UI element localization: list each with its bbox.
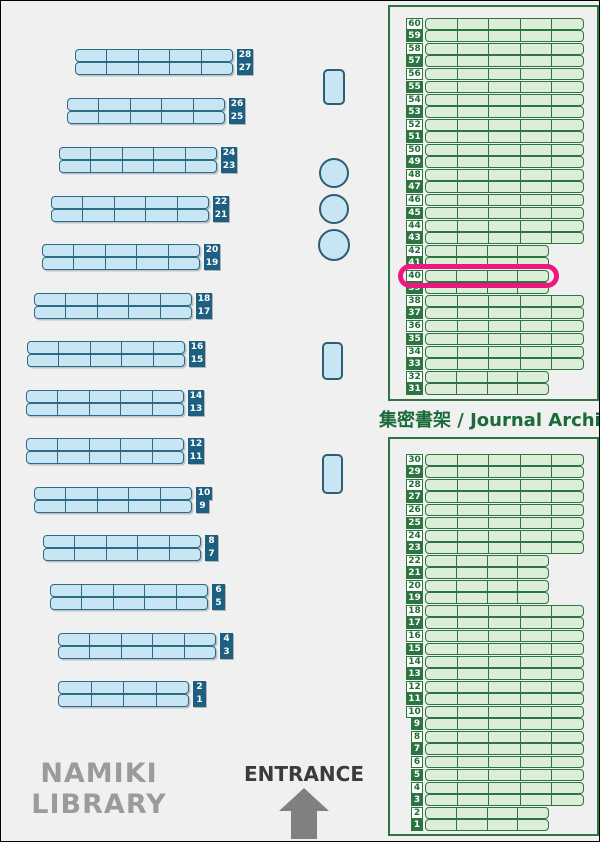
archive-shelf-number-36: 36 — [406, 320, 423, 332]
shelf-segment — [76, 63, 106, 74]
archive-shelf-row-51 — [425, 131, 584, 143]
shelf-segment — [90, 148, 121, 159]
shelf-row-16 — [27, 341, 185, 354]
shelf-segment — [520, 56, 552, 66]
shelf-segment — [426, 783, 457, 793]
shelf-segment — [35, 501, 65, 512]
archive-shelf-row-18 — [425, 605, 584, 617]
shelf-segment — [551, 531, 583, 541]
shelf-segment — [551, 44, 583, 54]
shelf-row-20 — [42, 244, 200, 257]
shelf-segment — [426, 657, 457, 667]
shelf-segment — [551, 505, 583, 515]
shelf-segment — [488, 82, 520, 92]
shelf-segment — [59, 695, 91, 706]
shelf-segment — [106, 63, 137, 74]
shelf-segment — [426, 170, 457, 180]
archive-shelf-number-57: 57 — [406, 55, 423, 67]
shelf-segment — [520, 657, 552, 667]
shelf-row-5 — [50, 597, 208, 610]
entrance-arrow-icon — [279, 788, 329, 811]
shelf-segment — [551, 95, 583, 105]
shelf-segment — [145, 197, 176, 208]
shelf-segment — [551, 492, 583, 502]
shelf-segment — [73, 258, 104, 269]
shelf-segment — [457, 669, 489, 679]
shelf-segment — [426, 757, 457, 767]
archive-shelf-number-52: 52 — [406, 119, 423, 131]
shelf-segment — [137, 536, 168, 547]
shelf-segment — [426, 455, 457, 465]
shelf-segment — [520, 69, 552, 79]
shelf-segment — [74, 536, 105, 547]
shelf-segment — [488, 631, 520, 641]
shelf-segment — [98, 99, 129, 110]
archive-shelf-row-13 — [425, 668, 584, 680]
shelf-segment — [520, 157, 552, 167]
shelf-segment — [520, 296, 552, 306]
shelf-segment — [27, 452, 57, 463]
shelf-row-2 — [58, 681, 189, 694]
shelf-segment — [488, 455, 520, 465]
shelf-segment — [89, 404, 120, 415]
shelf-segment — [488, 56, 520, 66]
shelf-row-6 — [50, 584, 208, 597]
shelf-segment — [426, 221, 457, 231]
shelf-segment — [426, 195, 457, 205]
shelf-segment — [426, 95, 457, 105]
archive-shelf-row-22 — [425, 555, 549, 567]
shelf-segment — [551, 543, 583, 553]
shelf-segment — [551, 195, 583, 205]
shelf-segment — [35, 294, 65, 305]
shelf-number-25: 25 — [229, 111, 245, 124]
archive-shelf-row-57 — [425, 55, 584, 67]
shelf-segment — [59, 634, 89, 645]
archive-shelf-number-18: 18 — [406, 605, 423, 617]
shelf-segment — [487, 581, 518, 591]
shelf-number-26: 26 — [229, 98, 245, 111]
shelf-segment — [551, 707, 583, 717]
shelf-segment — [426, 694, 457, 704]
shelf-segment — [97, 307, 128, 318]
library-name: NAMIKI LIBRARY — [15, 758, 183, 820]
shelf-segment — [551, 132, 583, 142]
shelf-segment — [457, 770, 489, 780]
shelf-segment — [520, 707, 552, 717]
shelf-segment — [122, 148, 153, 159]
shelf-segment — [457, 744, 489, 754]
shelf-segment — [90, 355, 121, 366]
shelf-segment — [520, 606, 552, 616]
shelf-segment — [58, 342, 89, 353]
shelf-segment — [426, 69, 457, 79]
archive-shelf-number-2: 2 — [411, 807, 423, 819]
shelf-segment — [105, 258, 136, 269]
shelf-segment — [156, 695, 189, 706]
library-name-line1: NAMIKI — [15, 758, 183, 789]
shelf-segment — [551, 669, 583, 679]
pillar — [323, 69, 345, 105]
archive-shelf-number-4: 4 — [411, 782, 423, 794]
shelf-segment — [426, 719, 457, 729]
shelf-segment — [28, 342, 58, 353]
archive-shelf-number-21: 21 — [406, 567, 423, 579]
archive-shelf-number-35: 35 — [406, 333, 423, 345]
shelf-number-28: 28 — [237, 49, 253, 62]
entrance-arrow-stem — [291, 811, 317, 839]
round-table — [319, 158, 349, 188]
shelf-segment — [457, 757, 489, 767]
shelf-row-26 — [67, 98, 225, 111]
shelf-segment — [426, 208, 457, 218]
shelf-segment — [426, 644, 457, 654]
shelf-segment — [551, 744, 583, 754]
archive-shelf-number-23: 23 — [406, 542, 423, 554]
shelf-segment — [488, 492, 520, 502]
shelf-segment — [551, 644, 583, 654]
shelf-segment — [551, 157, 583, 167]
archive-shelf-number-54: 54 — [406, 94, 423, 106]
shelf-segment — [551, 518, 583, 528]
archive-shelf-row-55 — [425, 81, 584, 93]
shelf-segment — [456, 568, 487, 578]
archive-shelf-number-12: 12 — [406, 681, 423, 693]
shelf-segment — [184, 647, 215, 658]
shelf-segment — [457, 107, 489, 117]
shelf-segment — [457, 518, 489, 528]
shelf-segment — [551, 455, 583, 465]
shelf-segment — [488, 618, 520, 628]
shelf-segment — [488, 347, 520, 357]
shelf-number-14: 14 — [188, 390, 204, 403]
shelf-segment — [487, 556, 518, 566]
archive-shelf-number-59: 59 — [406, 30, 423, 42]
shelf-segment — [487, 820, 518, 830]
shelf-segment — [488, 120, 520, 130]
archive-shelf-row-4 — [425, 782, 584, 794]
archive-shelf-number-14: 14 — [406, 656, 423, 668]
archive-shelf-number-1: 1 — [411, 819, 423, 831]
shelf-segment — [426, 120, 457, 130]
shelf-segment — [426, 145, 457, 155]
archive-shelf-row-43 — [425, 232, 584, 244]
shelf-segment — [457, 233, 489, 243]
shelf-segment — [113, 585, 144, 596]
shelf-segment — [456, 808, 487, 818]
shelf-row-1 — [58, 694, 189, 707]
shelf-segment — [426, 296, 457, 306]
shelf-segment — [520, 455, 552, 465]
shelf-segment — [520, 334, 552, 344]
shelf-segment — [120, 391, 151, 402]
shelf-segment — [551, 82, 583, 92]
shelf-number-21: 21 — [213, 209, 229, 222]
shelf-segment — [185, 148, 216, 159]
shelf-segment — [426, 669, 457, 679]
shelf-segment — [152, 391, 183, 402]
shelf-segment — [487, 384, 518, 394]
shelf-segment — [152, 439, 183, 450]
archive-shelf-row-7 — [425, 743, 584, 755]
highlight-ring-shelf-40 — [398, 264, 559, 288]
shelf-segment — [128, 488, 159, 499]
shelf-segment — [136, 258, 167, 269]
shelf-segment — [426, 531, 457, 541]
shelf-segment — [59, 647, 89, 658]
archive-shelf-number-22: 22 — [406, 555, 423, 567]
shelf-segment — [520, 732, 552, 742]
library-name-line2: LIBRARY — [15, 789, 183, 820]
archive-shelf-row-30 — [425, 454, 584, 466]
archive-shelf-number-7: 7 — [411, 743, 423, 755]
shelf-segment — [457, 455, 489, 465]
shelf-segment — [120, 452, 151, 463]
shelf-segment — [59, 682, 91, 693]
archive-shelf-row-46 — [425, 194, 584, 206]
shelf-segment — [551, 719, 583, 729]
shelf-number-18: 18 — [196, 293, 212, 306]
archive-shelf-number-31: 31 — [406, 383, 423, 395]
archive-shelf-number-53: 53 — [406, 106, 423, 118]
shelf-segment — [488, 69, 520, 79]
shelf-segment — [106, 50, 137, 61]
shelf-segment — [520, 757, 552, 767]
archive-shelf-number-32: 32 — [406, 371, 423, 383]
shelf-segment — [488, 170, 520, 180]
shelf-segment — [426, 770, 457, 780]
shelf-segment — [456, 246, 487, 256]
shelf-segment — [457, 644, 489, 654]
archive-shelf-number-34: 34 — [406, 346, 423, 358]
shelf-segment — [185, 161, 216, 172]
shelf-segment — [65, 307, 96, 318]
shelf-segment — [520, 145, 552, 155]
archive-shelf-row-10 — [425, 706, 584, 718]
shelf-segment — [130, 99, 161, 110]
shelf-segment — [488, 606, 520, 616]
shelf-segment — [137, 549, 168, 560]
shelf-segment — [153, 355, 184, 366]
shelf-segment — [91, 682, 124, 693]
shelf-segment — [487, 808, 518, 818]
shelf-segment — [65, 501, 96, 512]
shelf-segment — [89, 452, 120, 463]
shelf-segment — [426, 505, 457, 515]
library-floor-map: 2827262524232221201918171615141312111098… — [0, 0, 600, 842]
archive-shelf-row-54 — [425, 94, 584, 106]
shelf-segment — [520, 682, 552, 692]
shelf-segment — [551, 657, 583, 667]
shelf-segment — [160, 307, 191, 318]
shelf-segment — [184, 634, 215, 645]
shelf-segment — [426, 618, 457, 628]
shelf-segment — [426, 308, 457, 318]
archive-shelf-row-11 — [425, 693, 584, 705]
shelf-segment — [457, 467, 489, 477]
shelf-segment — [520, 669, 552, 679]
shelf-segment — [457, 347, 489, 357]
shelf-segment — [426, 19, 457, 29]
shelf-segment — [138, 63, 169, 74]
shelf-segment — [520, 744, 552, 754]
shelf-segment — [517, 581, 548, 591]
shelf-segment — [488, 157, 520, 167]
archive-shelf-number-6: 6 — [411, 756, 423, 768]
shelf-segment — [551, 757, 583, 767]
archive-shelf-number-13: 13 — [406, 668, 423, 680]
shelf-segment — [138, 50, 169, 61]
shelf-segment — [551, 334, 583, 344]
shelf-segment — [160, 501, 191, 512]
shelf-row-21 — [51, 209, 209, 222]
shelf-segment — [43, 258, 73, 269]
archive-shelf-number-17: 17 — [406, 617, 423, 629]
shelf-segment — [426, 543, 457, 553]
shelf-segment — [123, 682, 156, 693]
archive-shelf-number-58: 58 — [406, 43, 423, 55]
shelf-segment — [193, 112, 224, 123]
archive-shelf-number-29: 29 — [406, 466, 423, 478]
shelf-segment — [517, 556, 548, 566]
archive-shelf-row-44 — [425, 220, 584, 232]
shelf-segment — [488, 182, 520, 192]
shelf-segment — [426, 384, 456, 394]
shelf-segment — [456, 593, 487, 603]
shelf-segment — [121, 634, 152, 645]
archive-shelf-row-17 — [425, 617, 584, 629]
archive-shelf-row-48 — [425, 169, 584, 181]
shelf-segment — [457, 334, 489, 344]
shelf-segment — [520, 631, 552, 641]
archive-shelf-row-2 — [425, 807, 549, 819]
archive-shelf-row-23 — [425, 542, 584, 554]
shelf-segment — [517, 820, 548, 830]
shelf-segment — [488, 770, 520, 780]
shelf-segment — [57, 404, 88, 415]
shelf-segment — [551, 233, 583, 243]
pillar — [322, 342, 343, 380]
shelf-segment — [426, 347, 457, 357]
archive-shelf-number-15: 15 — [406, 643, 423, 655]
shelf-segment — [457, 657, 489, 667]
shelf-segment — [488, 719, 520, 729]
archive-shelf-number-55: 55 — [406, 81, 423, 93]
shelf-segment — [156, 682, 189, 693]
shelf-segment — [551, 145, 583, 155]
shelf-segment — [52, 197, 82, 208]
shelf-number-3: 3 — [220, 646, 233, 659]
archive-shelf-number-43: 43 — [406, 232, 423, 244]
shelf-segment — [551, 120, 583, 130]
shelf-segment — [520, 543, 552, 553]
archive-shelf-number-51: 51 — [406, 131, 423, 143]
shelf-segment — [128, 307, 159, 318]
shelf-number-10: 10 — [196, 487, 212, 500]
archive-shelf-number-42: 42 — [406, 245, 423, 257]
shelf-segment — [89, 439, 120, 450]
archive-shelf-row-16 — [425, 630, 584, 642]
archive-shelf-row-19 — [425, 592, 549, 604]
archive-shelf-row-60 — [425, 18, 584, 30]
archive-shelf-row-6 — [425, 756, 584, 768]
shelf-segment — [120, 439, 151, 450]
shelf-segment — [426, 732, 457, 742]
shelf-segment — [457, 95, 489, 105]
shelf-segment — [487, 246, 518, 256]
shelf-segment — [457, 132, 489, 142]
archive-shelf-number-48: 48 — [406, 169, 423, 181]
archive-shelf-row-25 — [425, 517, 584, 529]
shelf-segment — [168, 258, 199, 269]
shelf-segment — [152, 634, 183, 645]
shelf-segment — [44, 536, 74, 547]
shelf-segment — [520, 783, 552, 793]
shelf-segment — [520, 308, 552, 318]
shelf-row-14 — [26, 390, 184, 403]
archive-shelf-row-59 — [425, 30, 584, 42]
shelf-row-8 — [43, 535, 201, 548]
shelf-segment — [488, 208, 520, 218]
shelf-segment — [76, 50, 106, 61]
shelf-segment — [160, 488, 191, 499]
shelf-segment — [426, 744, 457, 754]
archive-shelf-row-29 — [425, 466, 584, 478]
archive-shelf-number-16: 16 — [406, 630, 423, 642]
shelf-segment — [27, 439, 57, 450]
shelf-segment — [488, 644, 520, 654]
shelf-segment — [123, 695, 156, 706]
pillar — [322, 454, 343, 494]
round-table — [319, 194, 349, 224]
shelf-segment — [488, 321, 520, 331]
shelf-segment — [60, 161, 90, 172]
shelf-number-16: 16 — [189, 341, 205, 354]
shelf-segment — [201, 63, 232, 74]
shelf-segment — [551, 618, 583, 628]
archive-shelf-row-50 — [425, 144, 584, 156]
shelf-segment — [426, 581, 456, 591]
archive-shelf-number-56: 56 — [406, 68, 423, 80]
shelf-row-23 — [59, 160, 217, 173]
shelf-segment — [488, 145, 520, 155]
shelf-segment — [89, 391, 120, 402]
shelf-segment — [113, 598, 144, 609]
shelf-segment — [488, 518, 520, 528]
shelf-segment — [520, 208, 552, 218]
shelf-segment — [487, 372, 518, 382]
archive-shelf-row-12 — [425, 681, 584, 693]
shelf-segment — [520, 132, 552, 142]
shelf-segment — [457, 732, 489, 742]
shelf-segment — [98, 112, 129, 123]
shelf-segment — [152, 452, 183, 463]
shelf-segment — [517, 384, 548, 394]
shelf-segment — [58, 355, 89, 366]
shelf-segment — [488, 359, 520, 369]
shelf-row-12 — [26, 438, 184, 451]
archive-shelf-row-28 — [425, 479, 584, 491]
archive-shelf-row-15 — [425, 643, 584, 655]
shelf-segment — [82, 197, 113, 208]
shelf-segment — [488, 308, 520, 318]
shelf-segment — [520, 195, 552, 205]
shelf-segment — [551, 631, 583, 641]
shelf-segment — [81, 598, 112, 609]
shelf-segment — [457, 543, 489, 553]
shelf-row-25 — [67, 111, 225, 124]
shelf-segment — [106, 536, 137, 547]
